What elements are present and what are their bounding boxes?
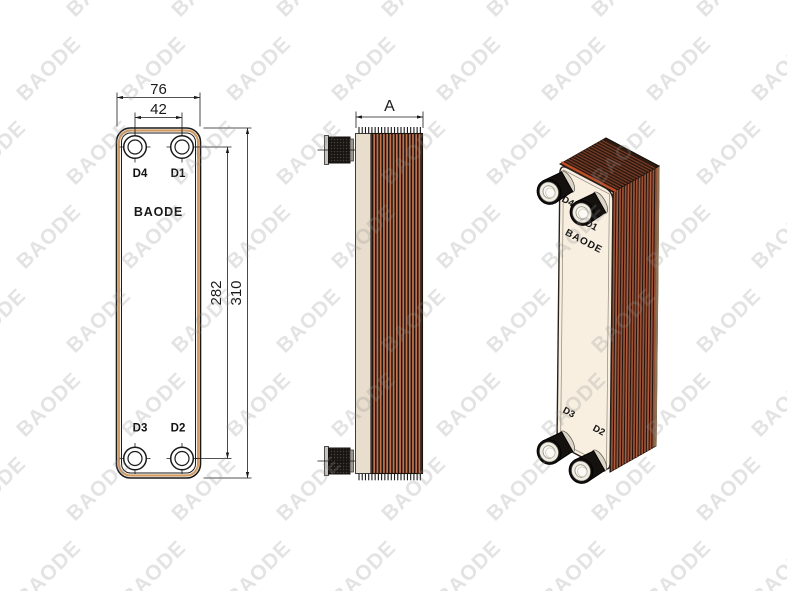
watermark-text: BAODE [12,368,85,441]
dim-depth: A [356,98,423,128]
watermark-text: BAODE [747,32,787,105]
side-fitting [318,136,362,165]
watermark-text: BAODE [537,536,610,591]
side-view: A [318,98,424,480]
watermark-text: BAODE [482,116,555,189]
watermark-text: BAODE [692,0,765,22]
watermark-text: BAODE [642,536,715,591]
watermark-text: BAODE [222,368,295,441]
watermark-text: BAODE [222,200,295,273]
front-port-label-d2: D2 [171,423,186,435]
watermark-text: BAODE [272,284,345,357]
watermark-text: BAODE [482,0,555,22]
watermark-text: BAODE [0,0,31,22]
watermark-text: BAODE [327,536,400,591]
watermark-text: BAODE [117,536,190,591]
front-view: D4 D1 D3 D2 BAODE 76 42 282 [117,81,252,478]
watermark-text: BAODE [0,284,31,357]
watermark-text: BAODE [747,368,787,441]
drawing-svg: D4 D1 D3 D2 BAODE 76 42 282 [0,0,787,591]
dim-overall-width-value: 76 [150,81,167,98]
front-brand-text: BAODE [134,205,183,219]
side-fittings [318,136,362,476]
watermark-text: BAODE [747,536,787,591]
watermark-text: BAODE [432,32,505,105]
watermark-text: BAODE [692,284,765,357]
watermark-text: BAODE [222,32,295,105]
watermark-text: BAODE [12,536,85,591]
watermark-text: BAODE [537,32,610,105]
watermark-text: BAODE [692,116,765,189]
side-fitting [318,447,362,476]
watermark-text: BAODE [432,200,505,273]
dim-depth-value: A [384,98,395,115]
front-port-label-d1: D1 [171,168,186,180]
watermark-text: BAODE [747,200,787,273]
front-port-label-d3: D3 [133,423,148,435]
watermark-text: BAODE [432,368,505,441]
watermark-text: BAODE [272,0,345,22]
watermark-text: BAODE [377,0,450,22]
watermark-text: BAODE [0,116,31,189]
front-body-outline [117,128,201,478]
dim-overall-height-value: 310 [228,280,245,305]
watermark-text: BAODE [0,452,31,525]
dim-port-spacing-value: 42 [150,101,167,118]
front-port-label-d4: D4 [133,168,148,180]
watermark-text: BAODE [327,32,400,105]
watermark-text: BAODE [692,452,765,525]
side-cover-plate [356,134,372,474]
watermark-text: BAODE [222,536,295,591]
watermark-text: BAODE [12,32,85,105]
watermark-text: BAODE [12,200,85,273]
watermark-text: BAODE [587,0,660,22]
watermark-text: BAODE [482,284,555,357]
watermark-text: BAODE [642,32,715,105]
drawing-canvas: D4 D1 D3 D2 BAODE 76 42 282 [0,0,787,591]
watermark-text: BAODE [62,0,135,22]
dim-port-vertical-value: 282 [208,280,225,305]
iso-view: D4 D1 BAODE D3 D2 [533,138,659,488]
watermark-text: BAODE [167,0,240,22]
watermark-text: BAODE [432,536,505,591]
